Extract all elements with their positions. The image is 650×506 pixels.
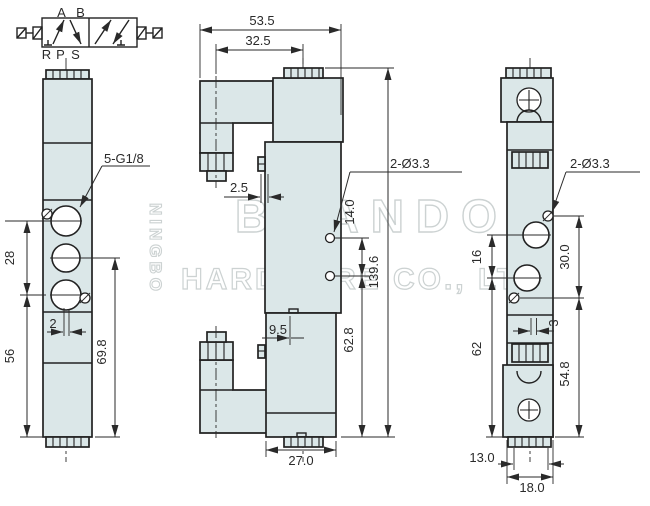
dim-hole-to-bottom: 54.8 — [557, 361, 572, 386]
valve-schematic-symbol: A B R P S — [17, 5, 162, 62]
dim-offset: 2 — [49, 316, 56, 331]
blocked-port-symbol — [117, 40, 125, 45]
dim-body-width: 18.0 — [519, 480, 544, 495]
dim-total-height: 139.6 — [366, 256, 381, 289]
dim-connector-to-port: 32.5 — [245, 33, 270, 48]
valve-body-front-upper — [265, 142, 341, 313]
port-label-r: R — [42, 47, 52, 62]
dim-hole-to-bottom: 62.8 — [341, 327, 356, 352]
dim-tab: 2.5 — [230, 180, 248, 195]
dim-total-width: 53.5 — [249, 13, 274, 28]
technical-drawing-page: NINGBO BRANDO HARDWARE CO., LTD A B R P … — [0, 0, 650, 506]
dim-port-spacing: 28 — [2, 251, 17, 265]
dim-port3-to-bottom: 56 — [2, 349, 17, 363]
solenoid-valve-drawing: NINGBO BRANDO HARDWARE CO., LTD A B R P … — [0, 0, 650, 506]
port-label-b: B — [76, 5, 86, 20]
port-label-a: A — [57, 5, 67, 20]
dim-body-width: 27.0 — [288, 453, 313, 468]
port-label-s: S — [71, 47, 81, 62]
dim-port2-to-bottom: 69.8 — [94, 339, 109, 364]
dim-center-offset: 3 — [546, 319, 561, 326]
thread-size-label: 5-G1/8 — [104, 151, 144, 166]
dim-hole-spacing: 14.0 — [342, 199, 357, 224]
solenoid-connector-bottom — [200, 360, 268, 433]
dim-port-to-bottom: 62 — [469, 342, 484, 356]
dim-hole-spacing-v: 30.0 — [557, 244, 572, 269]
dim-notch: 9.5 — [269, 322, 287, 337]
blocked-port-symbol — [44, 40, 52, 45]
left-view: 5-G1/8 28 56 69.8 2 — [2, 58, 150, 462]
hole-size-label: 2-Ø3.3 — [570, 156, 610, 171]
mounting-hole — [326, 234, 335, 243]
watermark-vertical: NINGBO — [146, 203, 165, 295]
coil-block-top — [273, 78, 343, 142]
hole-size-label: 2-Ø3.3 — [390, 156, 430, 171]
dim-port-spacing: 16 — [469, 250, 484, 264]
solenoid-connector-top — [200, 81, 273, 153]
dim-hole-spacing-h: 13.0 — [469, 450, 494, 465]
mounting-hole — [326, 272, 335, 281]
port-label-p: P — [56, 47, 66, 62]
